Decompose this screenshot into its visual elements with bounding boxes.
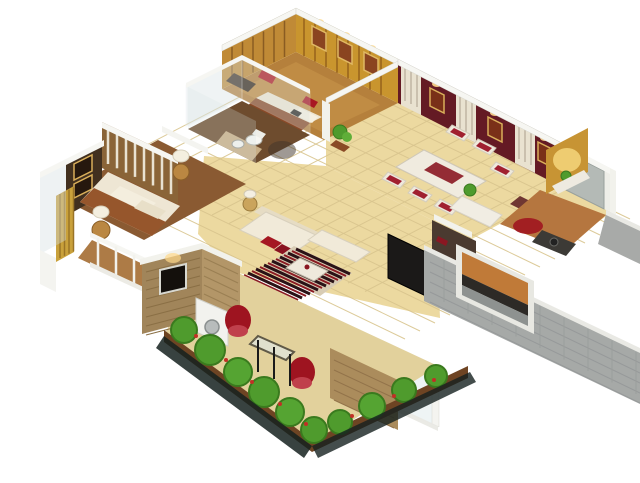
- bedroom2-lamp2-shade: [93, 206, 109, 218]
- flower-1: [194, 334, 198, 338]
- utility-wall-gray: [598, 214, 640, 264]
- floorplan-3d-render: [0, 0, 640, 483]
- entry-cap-end: [610, 168, 616, 215]
- bedroom2-corner-post: [40, 250, 56, 292]
- bedroom2-lamp1-stool: [173, 164, 189, 180]
- flower-2: [224, 358, 228, 362]
- mosaic-gold-glow: [553, 148, 581, 172]
- flower-7: [392, 394, 396, 398]
- flower-3: [250, 380, 254, 384]
- balcony-sconce-glow: [165, 253, 181, 263]
- kitchen-stove-burner: [550, 238, 558, 246]
- bush-3: [224, 358, 252, 386]
- balcony-chair-1-seat: [228, 325, 248, 337]
- side-table: [243, 197, 257, 211]
- flower-8: [432, 378, 436, 382]
- bush-2: [195, 335, 225, 365]
- balcony-washer-door: [205, 320, 219, 334]
- kitchen-rug: [513, 218, 543, 234]
- floorplan-svg: [0, 0, 640, 483]
- bush-9: [392, 378, 416, 402]
- flower-4: [278, 402, 282, 406]
- flower-6: [350, 414, 354, 418]
- hall-plant-leaves-2: [342, 132, 352, 142]
- bedroom2-lamp1-shade: [173, 150, 189, 162]
- bush-10: [425, 365, 447, 387]
- coffee-table-item: [305, 265, 310, 270]
- balcony-picture: [160, 264, 186, 294]
- balcony-chair-2-seat: [292, 377, 312, 389]
- bush-1: [171, 317, 197, 343]
- bedroom-partition-face: [322, 100, 330, 142]
- kitchen-cabinet-plant: [464, 184, 476, 196]
- side-table-lamp: [244, 190, 256, 198]
- bathroom-shower-shadow: [268, 141, 296, 159]
- bush-6: [301, 417, 327, 443]
- flower-5: [304, 422, 308, 426]
